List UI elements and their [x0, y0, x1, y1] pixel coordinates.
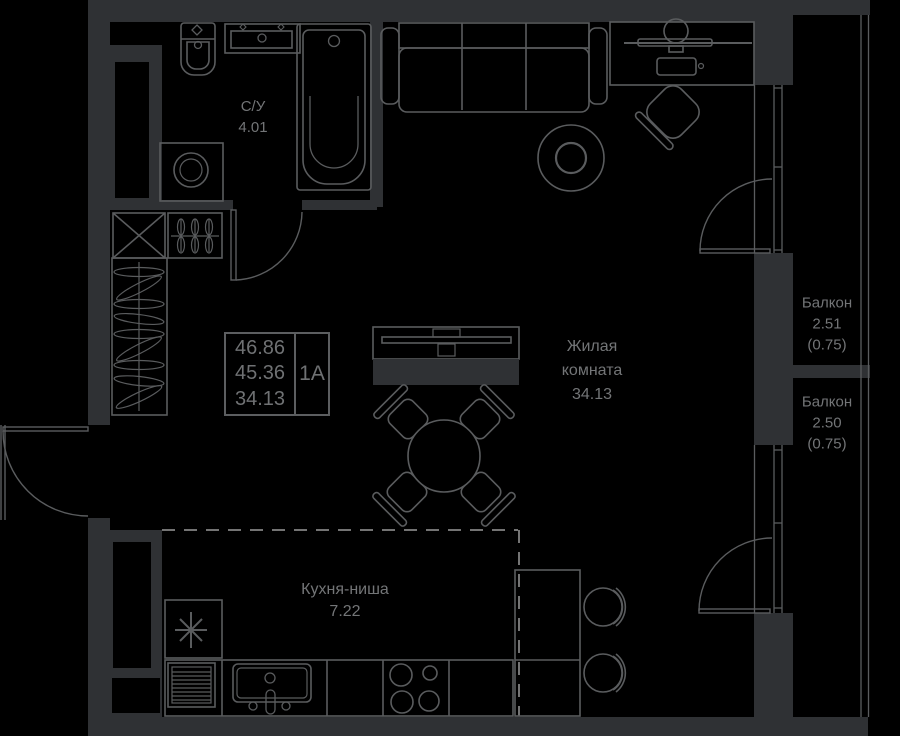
bar-stool-icon [584, 588, 625, 626]
balcony-door-lower [699, 538, 772, 613]
floor-plan-drawing [0, 0, 900, 736]
fridge-icon [165, 600, 222, 658]
wall-left-lower [88, 518, 110, 717]
entrance-door [1, 425, 88, 520]
apartment-type: 1А [294, 334, 328, 414]
bathroom-shaft-hole [115, 62, 149, 198]
bathroom-door [231, 210, 302, 280]
sofa-icon [381, 23, 607, 112]
bathroom-name: С/У [238, 96, 267, 117]
bathroom-sink-icon [225, 24, 300, 53]
balcony-door-upper [700, 179, 772, 253]
floor-plan: С/У 4.01 46.86 45.36 34.13 1А Жилая комн… [0, 0, 900, 736]
wardrobe-hangers-icon [112, 258, 167, 415]
bathtub-icon [297, 24, 371, 190]
coat-hooks-icon [168, 213, 222, 258]
bathroom-label: С/У 4.01 [238, 96, 267, 138]
wall-top [88, 0, 757, 22]
apartment-areas: 46.86 45.36 34.13 [226, 334, 294, 414]
living-room-area: 34.13 [562, 383, 623, 407]
kitchen-counter [165, 660, 513, 716]
pouf-icon [538, 125, 604, 191]
kitchen-area: 7.22 [301, 601, 389, 623]
balcony-top-coef: (0.75) [802, 335, 852, 356]
reduced-area: 45.36 [235, 362, 285, 385]
living-furniture [372, 19, 754, 527]
kitchen-sink-icon [233, 664, 311, 714]
wall-balcony-top [793, 0, 870, 15]
balcony-bottom-label: Балкон 2.50 (0.75) [802, 392, 852, 455]
wall-balcony-divider [757, 365, 870, 378]
apartment-info-box: 46.86 45.36 34.13 1А [224, 332, 330, 416]
kitchen-peninsula [515, 570, 580, 716]
laptop-icon [657, 58, 696, 75]
living-room-label: Жилая комната 34.13 [562, 335, 623, 407]
dining-set [372, 384, 517, 528]
wall-bathroom-right [370, 0, 383, 207]
desk-icon [610, 19, 754, 85]
kitchen-furniture [165, 570, 625, 716]
wall-right-top-block [754, 0, 793, 85]
hallway-storage [112, 213, 222, 415]
toilet-icon [181, 23, 215, 75]
wall-left-upper [88, 0, 110, 425]
living-area: 34.13 [235, 388, 285, 411]
kitchen-label: Кухня-ниша 7.22 [301, 579, 389, 623]
balcony-bottom-coef: (0.75) [802, 434, 852, 455]
bar-stool-icon [584, 654, 625, 692]
wall-bathroom-bottom-right [302, 200, 377, 210]
snowflake-icon [175, 612, 207, 648]
balcony-top-area: 2.51 [802, 314, 852, 335]
washing-machine-icon [160, 143, 223, 201]
bathroom-area: 4.01 [238, 117, 267, 138]
total-area: 46.86 [235, 337, 285, 360]
stove-icon [390, 664, 439, 713]
wall-balcony-mid-block [754, 253, 793, 445]
desk-chair-icon [634, 79, 706, 151]
wall-right-bottom-block [754, 613, 793, 717]
wall-bottom [88, 717, 868, 736]
balcony-bottom-area: 2.50 [802, 413, 852, 434]
kitchen-shaft-hole [113, 542, 151, 668]
tv-stand-icon [373, 327, 519, 385]
dining-table-icon [408, 420, 480, 492]
balcony-top-label: Балкон 2.51 (0.75) [802, 293, 852, 356]
kitchen-niche-hole [112, 678, 160, 713]
vent-shaft-icon [113, 213, 165, 258]
dishwasher-icon [168, 663, 215, 707]
